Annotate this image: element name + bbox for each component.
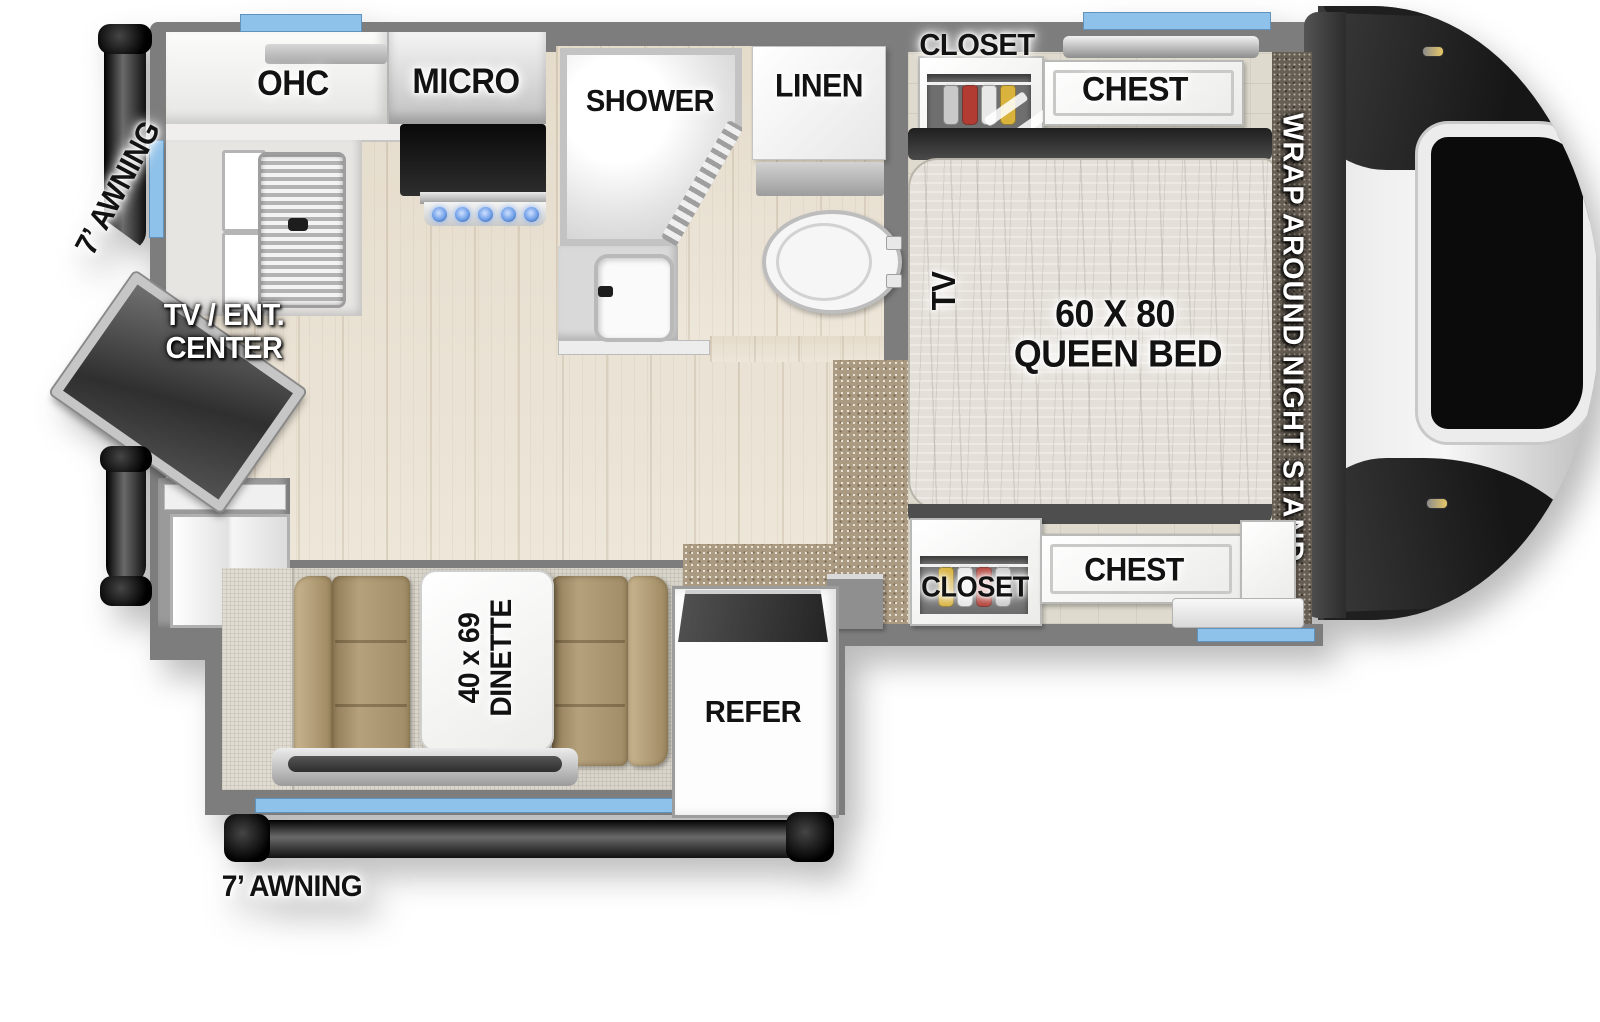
- dinette-table-base: [272, 748, 578, 786]
- camper-unit: WRAP AROUND NIGHT STAND 7’: [0, 0, 1600, 1022]
- dinette-type-line: DINETTE: [486, 599, 518, 716]
- awning-cap: [98, 24, 152, 54]
- dinette-bench-backrest-right: [628, 576, 668, 766]
- toilet-seat-ring: [776, 223, 872, 301]
- tv-ent-label: TV / ENT. CENTER: [164, 298, 284, 364]
- refer-label: REFER: [705, 694, 801, 730]
- toilet: [762, 210, 902, 314]
- carpet-landing: [683, 544, 835, 590]
- sink-faucet-icon: [288, 218, 308, 231]
- dinette-table-base-slot: [288, 756, 562, 772]
- tv-ent-label-line1: TV / ENT.: [164, 298, 284, 331]
- cushion-seam: [335, 704, 407, 707]
- marker-light-bottom-icon: [1426, 498, 1448, 509]
- burner-icon: [432, 207, 447, 222]
- cushion-seam: [335, 640, 407, 643]
- linen-shelf: [756, 162, 884, 196]
- bed-type-label: QUEEN BED: [1014, 334, 1222, 377]
- bathroom-doorway-floor: [710, 336, 884, 362]
- shower-label: SHOWER: [586, 83, 714, 119]
- entry-step-bedroom: [1172, 598, 1304, 628]
- overhead-cabinet-shelf: [265, 44, 387, 64]
- awning-roller-bottom: [235, 820, 831, 858]
- lavatory-sink: [594, 254, 674, 342]
- floorplan-canvas: WRAP AROUND NIGHT STAND 7’: [0, 0, 1600, 1022]
- chest-front-label: CHEST: [1082, 71, 1188, 110]
- nose-bottom-dark-panel: [1318, 458, 1600, 620]
- burner-icon: [524, 207, 539, 222]
- dinette-bench-seat-left: [332, 576, 410, 766]
- burner-icon: [455, 207, 470, 222]
- tv-ent-label-line2: CENTER: [164, 331, 284, 364]
- awning-cap: [100, 576, 152, 606]
- window-top-left: [240, 14, 362, 32]
- awning-cap: [100, 446, 152, 472]
- closet-front-label: CLOSET: [919, 27, 1034, 63]
- nose-window: [1418, 124, 1596, 442]
- cooktop-burners: [424, 202, 546, 226]
- cushion-seam: [555, 640, 625, 643]
- awning-cap: [786, 812, 834, 862]
- awning-bottom-label: 7’ AWNING: [222, 870, 362, 904]
- dinette-size-line: 40 x 69: [454, 599, 486, 716]
- window-bedroom-bottom: [1197, 628, 1315, 642]
- linen-label: LINEN: [775, 68, 863, 105]
- dinette-bench-seat-right: [552, 576, 628, 766]
- cushion-seam: [555, 704, 625, 707]
- lavatory-faucet-icon: [598, 286, 613, 297]
- toilet-hinge-icon: [886, 236, 902, 250]
- clothes-icon: [962, 85, 978, 125]
- marker-light-top-icon: [1422, 46, 1444, 57]
- refrigerator-lid: [678, 590, 828, 642]
- tv-label: TV: [925, 272, 963, 311]
- toilet-hinge-icon: [886, 274, 902, 288]
- awning-cap: [224, 814, 270, 862]
- nose-cap: [1318, 6, 1600, 620]
- closet-rear-label: CLOSET: [921, 572, 1029, 605]
- chest-front-handle: [1063, 36, 1259, 58]
- chest-rear-label: CHEST: [1084, 552, 1184, 589]
- micro-label: MICRO: [412, 62, 519, 102]
- dinette-label: 40 x 69 DINETTE: [454, 599, 518, 716]
- burner-icon: [501, 207, 516, 222]
- clothes-icon: [943, 85, 959, 125]
- ohc-label: OHC: [257, 64, 329, 104]
- bed-size-label: 60 X 80: [1055, 294, 1175, 337]
- window-top-right: [1083, 12, 1271, 30]
- bed-headboard: [908, 128, 1272, 160]
- range-hood: [400, 124, 546, 196]
- burner-icon: [478, 207, 493, 222]
- bathroom-door-sill: [558, 340, 710, 355]
- night-stand-end-box: [1240, 520, 1296, 604]
- dinette-bench-backrest-left: [294, 576, 332, 766]
